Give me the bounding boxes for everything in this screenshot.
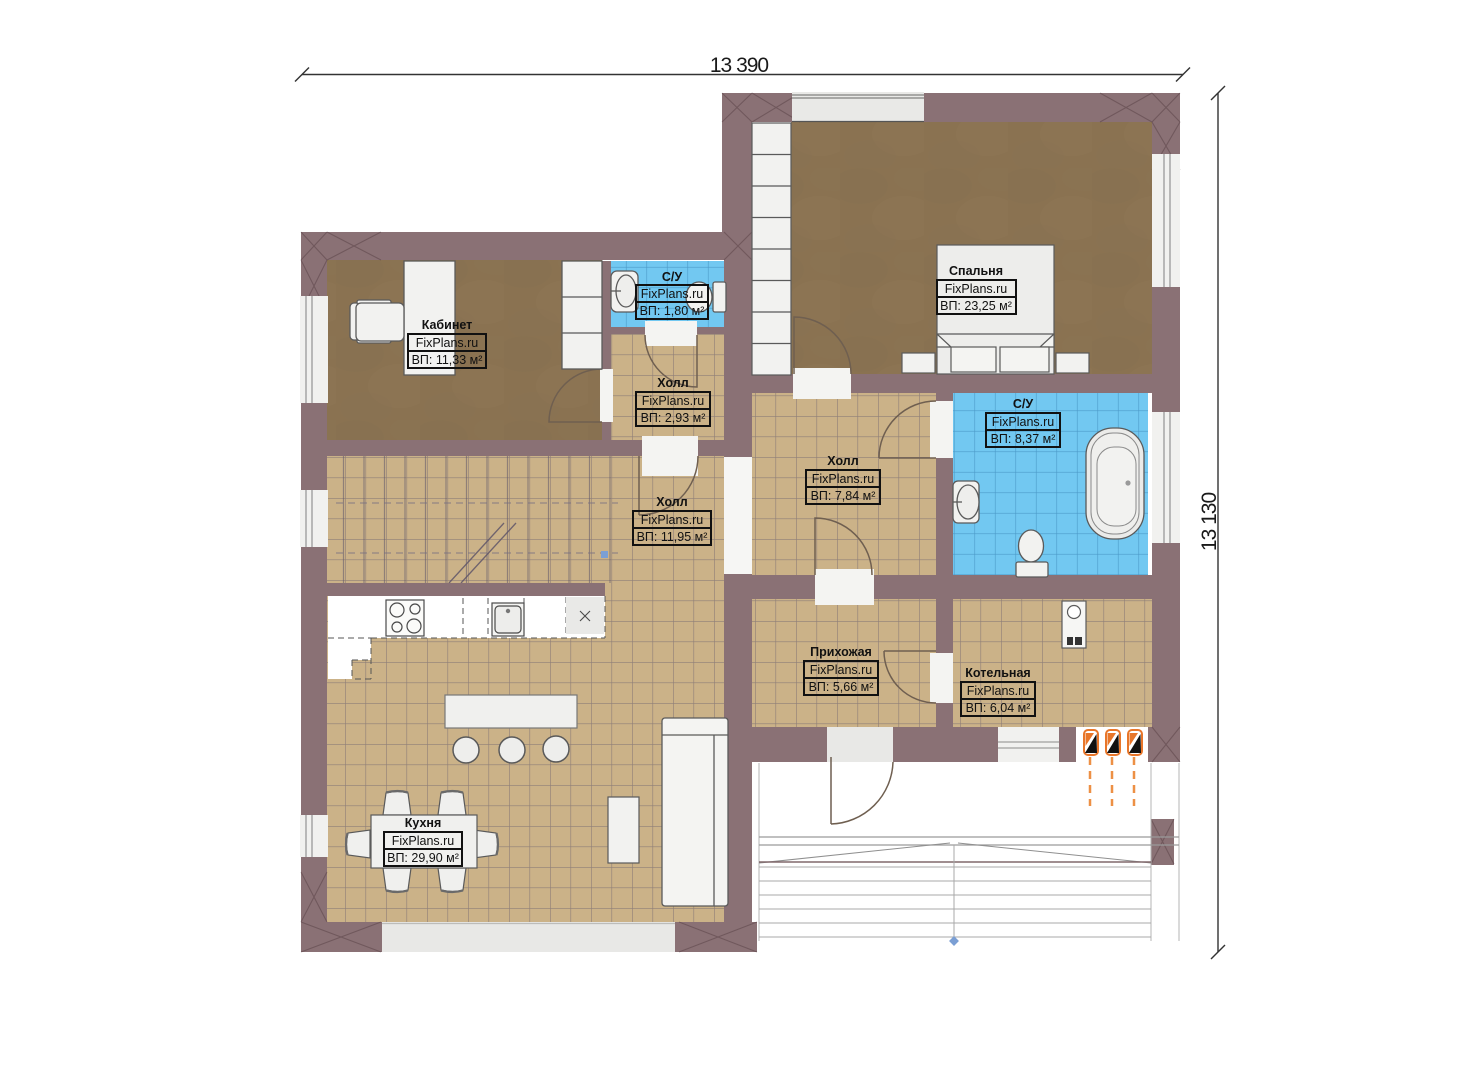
svg-text:FixPlans.ru: FixPlans.ru xyxy=(810,663,873,677)
svg-text:FixPlans.ru: FixPlans.ru xyxy=(945,282,1008,296)
svg-text:FixPlans.ru: FixPlans.ru xyxy=(392,834,455,848)
svg-text:Спальня: Спальня xyxy=(949,264,1003,278)
svg-text:Прихожая: Прихожая xyxy=(810,645,872,659)
svg-text:Кухня: Кухня xyxy=(405,816,442,830)
svg-text:FixPlans.ru: FixPlans.ru xyxy=(812,472,875,486)
svg-text:ВП: 6,04 м²: ВП: 6,04 м² xyxy=(966,701,1031,715)
svg-text:FixPlans.ru: FixPlans.ru xyxy=(992,415,1055,429)
svg-text:ВП: 1,80 м²: ВП: 1,80 м² xyxy=(640,304,705,318)
svg-text:Кабинет: Кабинет xyxy=(422,318,473,332)
svg-text:Холл: Холл xyxy=(657,376,688,390)
svg-text:ВП: 29,90 м²: ВП: 29,90 м² xyxy=(387,851,459,865)
svg-text:FixPlans.ru: FixPlans.ru xyxy=(641,287,704,301)
svg-text:ВП: 8,37 м²: ВП: 8,37 м² xyxy=(991,432,1056,446)
svg-text:ВП: 11,33 м²: ВП: 11,33 м² xyxy=(412,353,483,367)
svg-text:С/У: С/У xyxy=(1013,397,1034,411)
svg-text:ВП: 11,95 м²: ВП: 11,95 м² xyxy=(637,530,708,544)
svg-text:FixPlans.ru: FixPlans.ru xyxy=(967,684,1030,698)
svg-text:ВП: 2,93 м²: ВП: 2,93 м² xyxy=(641,411,706,425)
svg-text:13 130: 13 130 xyxy=(1198,493,1221,552)
svg-text:FixPlans.ru: FixPlans.ru xyxy=(641,513,704,527)
svg-text:С/У: С/У xyxy=(662,270,683,284)
svg-text:ВП: 5,66 м²: ВП: 5,66 м² xyxy=(809,680,874,694)
svg-text:13 390: 13 390 xyxy=(710,54,769,77)
svg-text:FixPlans.ru: FixPlans.ru xyxy=(416,336,479,350)
svg-text:Холл: Холл xyxy=(827,454,858,468)
svg-text:Котельная: Котельная xyxy=(965,666,1030,680)
svg-text:FixPlans.ru: FixPlans.ru xyxy=(642,394,705,408)
svg-text:ВП: 23,25 м²: ВП: 23,25 м² xyxy=(940,299,1012,313)
svg-text:Холл: Холл xyxy=(656,495,687,509)
svg-text:ВП: 7,84 м²: ВП: 7,84 м² xyxy=(811,489,876,503)
